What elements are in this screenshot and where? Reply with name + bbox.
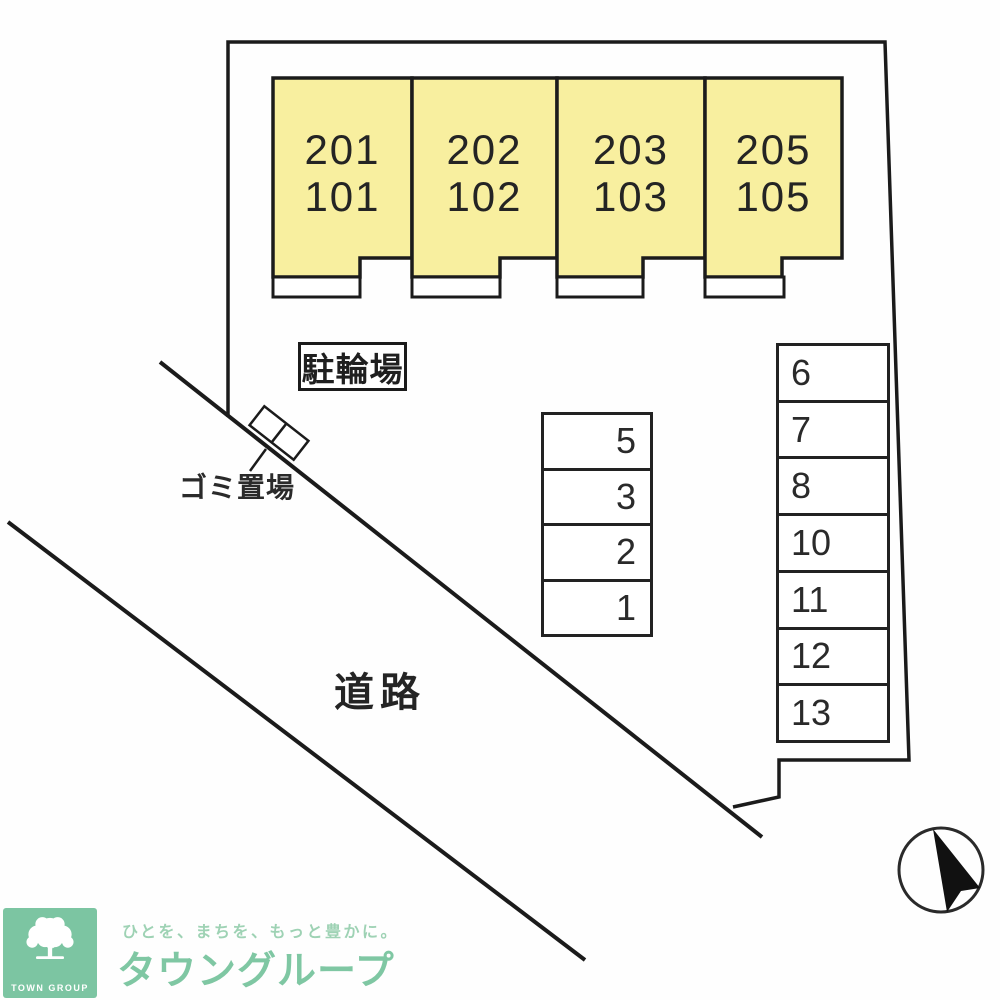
tree-icon <box>18 914 82 970</box>
parking-space: 1 <box>544 579 650 635</box>
building-label-3: 203 103 <box>557 126 705 220</box>
parking-space: 8 <box>779 456 887 513</box>
road-label: 道路 <box>334 660 426 718</box>
brand-tagline: ひとを、まちを、もっと豊かに。 <box>122 918 399 942</box>
parking-column-middle: 5 3 2 1 <box>541 412 653 637</box>
parking-space: 6 <box>779 346 887 400</box>
building-label-2: 202 102 <box>412 126 557 220</box>
porch-building-3 <box>557 277 643 297</box>
unit-number: 103 <box>557 173 705 220</box>
road-outer-line <box>8 522 585 960</box>
parking-space: 13 <box>779 683 887 740</box>
porch-building-1 <box>273 277 360 297</box>
parking-space: 3 <box>544 468 650 524</box>
parking-space: 12 <box>779 627 887 684</box>
building-label-1: 201 101 <box>273 126 412 220</box>
parking-space: 11 <box>779 570 887 627</box>
unit-number: 101 <box>273 173 412 220</box>
garbage-area-marker <box>250 406 309 459</box>
north-compass-icon <box>899 828 983 912</box>
parking-space: 2 <box>544 523 650 579</box>
parking-space: 10 <box>779 513 887 570</box>
porch-building-2 <box>412 277 500 297</box>
brand-name: タウングループ <box>117 940 395 996</box>
unit-number: 105 <box>705 173 842 220</box>
site-plan: 201 101 202 102 203 103 205 105 駐輪場 ゴミ置場… <box>0 0 1000 1000</box>
garbage-area-label: ゴミ置場 <box>172 466 302 506</box>
unit-number: 205 <box>705 126 842 173</box>
unit-number: 202 <box>412 126 557 173</box>
porch-building-4 <box>705 277 784 297</box>
logo-text: TOWN GROUP <box>11 983 89 993</box>
bicycle-parking-label: 駐輪場 <box>298 342 407 391</box>
parking-space: 7 <box>779 400 887 457</box>
town-group-logo: TOWN GROUP <box>3 908 97 998</box>
building-label-4: 205 105 <box>705 126 842 220</box>
unit-number: 203 <box>557 126 705 173</box>
parking-column-right: 6 7 8 10 11 12 13 <box>776 343 890 743</box>
unit-number: 201 <box>273 126 412 173</box>
parking-space: 5 <box>544 415 650 468</box>
unit-number: 102 <box>412 173 557 220</box>
road-boundary-line <box>160 362 762 837</box>
